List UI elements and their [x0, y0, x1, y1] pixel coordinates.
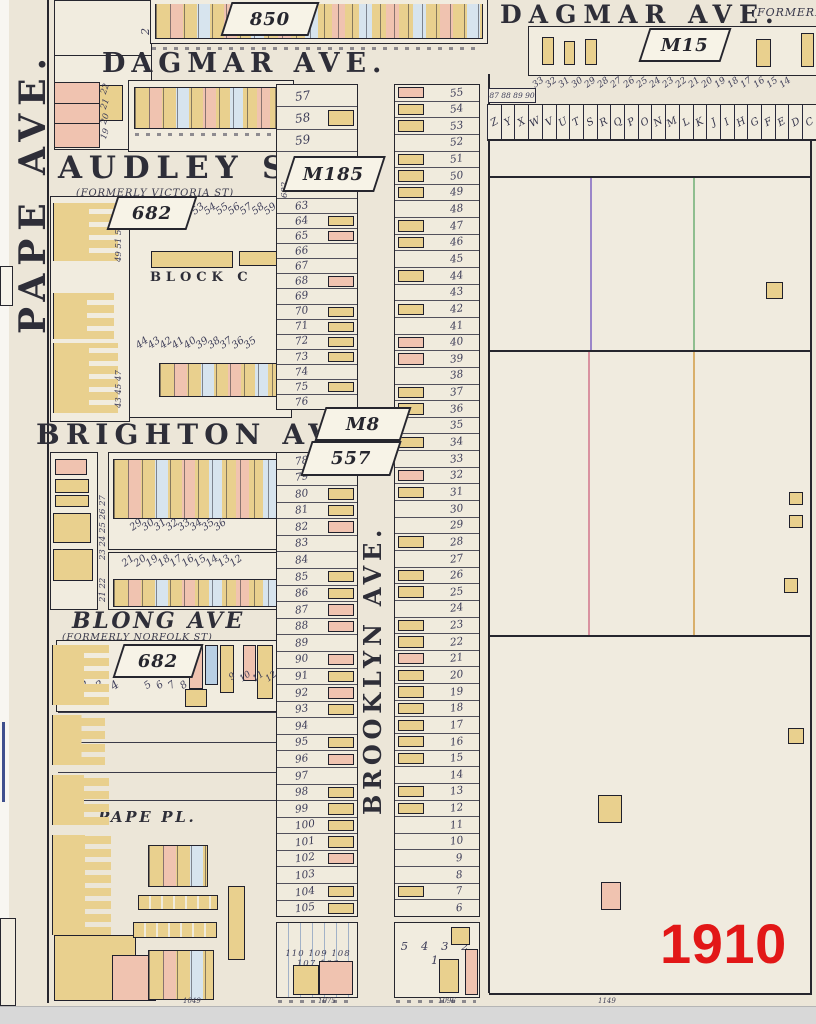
lettered-lot: O [638, 105, 652, 139]
lot-number: 80 [294, 488, 309, 500]
lot-row: 85 [277, 568, 357, 585]
street-note-dagmar: (FORMERLY [752, 6, 816, 19]
city-block [108, 452, 302, 550]
rowhouses [52, 835, 111, 935]
lot-number: 21 [449, 652, 464, 664]
building [398, 120, 424, 131]
lot-line [588, 352, 590, 635]
building [205, 645, 218, 685]
lot-row: 72 [277, 334, 357, 349]
city-block: 5 4 3 2 1 [394, 922, 480, 998]
lot-row: 23 [395, 617, 479, 634]
lot-line [58, 712, 280, 713]
lot-letter: E [776, 115, 788, 128]
lot-row: 65 [277, 228, 357, 243]
year-stamp: 1910 [660, 916, 787, 972]
lot-row: 7 [395, 883, 479, 900]
lot-row: 22 [395, 633, 479, 650]
lot-number-row: 2930313233343536 [130, 520, 226, 531]
lot-number: 88 [294, 620, 309, 632]
building [398, 270, 424, 281]
lot-row: 49 [395, 184, 479, 201]
building [398, 620, 424, 631]
building [328, 216, 354, 226]
street-label-dagmar-east: DAGMAR AVE. [500, 0, 781, 29]
lot-number-row: 21201918171615141312 [122, 556, 242, 567]
lot-row: 57 [277, 85, 357, 106]
lot-number: 95 [294, 736, 309, 748]
lot-number: 22 [449, 636, 464, 648]
lot-row: 102 [277, 850, 357, 867]
street-label-pape: PAPE AVE. [12, 50, 54, 334]
lot-row: 59 [277, 129, 357, 151]
lot-row: 6 [395, 899, 479, 916]
lot-number: 36 [449, 403, 464, 415]
lot-number: 101 [294, 835, 315, 848]
lot-number: 42 [449, 303, 464, 315]
building [451, 927, 470, 945]
lot-number: 40 [449, 336, 464, 348]
lot-number: 34 [449, 436, 464, 448]
building [398, 536, 424, 547]
lot-row: 26 [395, 567, 479, 584]
lot-number-row: 9101112 [226, 672, 278, 682]
lot-row: 90 [277, 651, 357, 668]
plan-number: 682 [138, 651, 178, 672]
lot-number: 66 [294, 245, 309, 257]
building [328, 737, 354, 748]
building [784, 578, 798, 593]
building [185, 689, 207, 707]
lot-number: 73 [294, 351, 309, 363]
building [801, 33, 814, 67]
building [328, 886, 354, 897]
lot-number: 43 [449, 286, 464, 298]
building [328, 621, 354, 632]
building [53, 513, 91, 543]
lot-number: 20 [99, 112, 112, 125]
lot-number: 46 [449, 236, 464, 248]
building [328, 571, 354, 582]
lot-row: 11 [395, 816, 479, 833]
rowhouses [113, 459, 297, 519]
lettered-lot: P [624, 105, 638, 139]
lot-row: 43 [395, 284, 479, 301]
building [328, 903, 354, 914]
building [328, 322, 354, 332]
house-number-row: 87 88 89 90 [488, 88, 536, 103]
rowhouses [148, 950, 214, 1000]
building [328, 754, 354, 765]
lot-number: 41 [449, 320, 464, 332]
lot-row: 96 [277, 750, 357, 767]
plan-number: 850 [250, 9, 290, 30]
lot-row: 9 [395, 849, 479, 866]
lot-row: 17 [395, 716, 479, 733]
lot-row: 92 [277, 684, 357, 701]
plan-number: M185 [303, 164, 364, 185]
building [398, 337, 424, 348]
lot-row: 94 [277, 717, 357, 734]
lot-row: 66 [277, 243, 357, 258]
lot-row: 95 [277, 734, 357, 751]
lot-number: 104 [294, 885, 315, 898]
lot-number: 7 [456, 886, 464, 897]
lot-row: 14 [395, 766, 479, 783]
lot-row: 101 [277, 833, 357, 850]
lot-number: 54 [449, 103, 464, 115]
boundary-line [488, 74, 490, 993]
lot-row: 83 [277, 535, 357, 552]
lot-number: 70 [294, 305, 309, 317]
lot-row: 27 [395, 550, 479, 567]
plan-number: M8 [346, 414, 380, 435]
building [789, 492, 803, 505]
lot-number: 93 [294, 703, 309, 715]
lettered-lot: N [651, 105, 665, 139]
lot-letter: D [790, 115, 802, 128]
building [398, 586, 424, 597]
lot-row: 46 [395, 234, 479, 251]
lot-row: 37 [395, 384, 479, 401]
building [398, 753, 424, 764]
lot-row: 104 [277, 883, 357, 900]
lot-number: 105 [294, 902, 315, 915]
lot-rows: 57 58 59 [277, 85, 357, 151]
building [398, 387, 424, 398]
lot-row: 53 [395, 117, 479, 134]
lot-row: 70 [277, 304, 357, 319]
lot-number: 83 [294, 538, 309, 550]
building [398, 104, 424, 115]
lot-number: 13 [449, 786, 464, 798]
lettered-lot: Y [501, 105, 515, 139]
lot-number: 53 [449, 120, 464, 132]
plan-number: 682 [132, 203, 172, 224]
lot-number: 45 [449, 253, 464, 265]
lot-row: 69 [277, 288, 357, 303]
lot-number: 38 [449, 370, 464, 382]
lot-line [693, 352, 695, 635]
lot-rows: 78 79 80 81 82 83 84 [277, 453, 357, 916]
lettered-lot: X [514, 105, 528, 139]
lot-rows: 55 54 53 52 51 50 49 [395, 85, 479, 916]
lot-row: 20 [395, 666, 479, 683]
lot-row: 73 [277, 349, 357, 364]
lot-letter: I [723, 116, 732, 128]
building [398, 87, 424, 98]
lot-number: 67 [294, 260, 309, 272]
lot-row: 42 [395, 300, 479, 317]
building [398, 154, 424, 165]
lettered-lot: D [788, 105, 802, 139]
lot-number: 22 [99, 82, 112, 95]
lot-row: 40 [395, 334, 479, 351]
street-label-blong: BLONG AVE [72, 608, 245, 634]
lot-column-west-upper: 57 58 59 63 64 65 [276, 84, 358, 410]
building [398, 653, 424, 664]
building [398, 670, 424, 681]
lot-number: 14 [449, 769, 464, 781]
lot-number: 68 [294, 275, 309, 287]
lot-number: 84 [294, 554, 309, 566]
lot-row: 87 [277, 601, 357, 618]
lot-line [693, 178, 695, 350]
lot-row: 12 [395, 800, 479, 817]
lot-number: 10 [449, 836, 464, 848]
lot-letter: V [543, 115, 555, 128]
lot-number: 16 [449, 736, 464, 748]
lot-number: 12 [449, 802, 464, 814]
lot-number: 32 [449, 469, 464, 481]
fire-insurance-atlas-map: 2 3 850 DAGMAR AVE. 22212019 AUDLEY ST. … [0, 0, 816, 1024]
lot-number: 15 [449, 752, 464, 764]
lettered-lot: U [556, 105, 570, 139]
building [585, 39, 597, 65]
lot-line [55, 123, 99, 124]
lot-number-row: 44434241403938373635 [136, 338, 256, 349]
lot-row: 89 [277, 634, 357, 651]
lot-number: 11 [449, 819, 464, 831]
lot-letter: F [763, 116, 774, 129]
building [328, 382, 354, 392]
building [328, 337, 354, 347]
lot-number: 59 [294, 133, 311, 147]
building [328, 588, 354, 599]
building [398, 886, 424, 897]
lot-number: 25 [449, 586, 464, 598]
lot-letter: H [735, 115, 748, 129]
lot-number: 47 [449, 220, 464, 232]
lot-number: 75 [294, 381, 309, 393]
building [398, 237, 424, 248]
lettered-lot: S [583, 105, 597, 139]
rowhouses [134, 87, 286, 129]
lot-number: 44 [449, 270, 464, 282]
house-number-ticks [135, 133, 285, 136]
lettered-lot: L [679, 105, 693, 139]
lot-row: 50 [395, 167, 479, 184]
lot-letter: R [598, 115, 610, 128]
building [55, 479, 89, 493]
lot-row: 25 [395, 583, 479, 600]
lot-letter: P [626, 116, 637, 129]
lot-letter: T [571, 116, 582, 129]
lot-row: 30 [395, 500, 479, 517]
lot-number: 14 [777, 75, 793, 91]
lot-row: 99 [277, 800, 357, 817]
lot-number-string: 23 24 25 26 27 [98, 495, 108, 560]
lot-number: 37 [449, 386, 464, 398]
lot-number: 71 [294, 321, 309, 333]
building [598, 795, 622, 823]
building [601, 882, 621, 910]
lot-number: 89 [294, 637, 309, 649]
building [398, 803, 424, 814]
lot-letter: O [639, 115, 651, 129]
rowhouses [52, 645, 109, 705]
lot-line [590, 178, 592, 350]
lot-row: 13 [395, 783, 479, 800]
building [328, 488, 354, 499]
block-line [489, 350, 810, 352]
building [328, 853, 354, 864]
building [439, 959, 459, 993]
lot-letter: G [749, 115, 761, 128]
building [328, 505, 354, 516]
building [398, 170, 424, 181]
lot-row: 34 [395, 433, 479, 450]
lot-row: 18 [395, 700, 479, 717]
lot-row: 68 [277, 273, 357, 288]
building [220, 645, 234, 693]
lot-number: 72 [294, 336, 309, 348]
lot-row: 86 [277, 585, 357, 602]
plan-number: M15 [661, 35, 709, 56]
building [328, 654, 354, 665]
lot-row: 10 [395, 833, 479, 850]
survey-number: 1049 [183, 997, 201, 1005]
lettered-lot: I [720, 105, 734, 139]
block-line [489, 176, 810, 178]
lot-number: 55 [449, 87, 464, 99]
lot-row: 24 [395, 600, 479, 617]
rowhouses [53, 203, 118, 261]
building [328, 671, 354, 682]
lettered-lot-row: Z Y X W V U T S R Q P O [487, 104, 816, 141]
building [398, 437, 424, 448]
lot-row: 93 [277, 701, 357, 718]
lot-row: 88 [277, 618, 357, 635]
lot-number: 39 [449, 353, 464, 365]
plan-plate-m15: M15 [638, 28, 731, 62]
lot-column-east: 55 54 53 52 51 50 49 [394, 84, 480, 917]
page-margin [0, 0, 9, 1006]
lot-row: 32 [395, 467, 479, 484]
rowhouses [148, 845, 208, 887]
building [55, 459, 87, 475]
lot-column-west-lower: 78 79 80 81 82 83 84 [276, 452, 358, 917]
lot-row: 82 [277, 518, 357, 535]
building [53, 549, 93, 581]
lot-letter: J [709, 116, 718, 128]
street-label-brooklyn: BROOKLYN AVE. [358, 525, 387, 815]
plan-number: 557 [331, 448, 371, 469]
lettered-lot: V [542, 105, 556, 139]
lot-number: 63 [294, 200, 309, 212]
lot-letter: Y [503, 116, 514, 129]
rowhouses [113, 579, 297, 607]
lot-row: 45 [395, 250, 479, 267]
lot-letter: M [665, 115, 679, 130]
lot-number: 102 [294, 852, 315, 865]
building [0, 918, 16, 1006]
lot-number: 9 [456, 853, 464, 864]
lot-number: 6 [456, 903, 464, 914]
rowhouses [53, 293, 114, 339]
building [564, 41, 575, 65]
building [398, 736, 424, 747]
lot-number: 87 [294, 604, 309, 616]
lot-number: 91 [294, 670, 309, 682]
plan-plate-682-audley: 682 [106, 196, 197, 230]
lot-number: 27 [449, 553, 464, 565]
lot-row: 98 [277, 784, 357, 801]
lot-number: 28 [449, 536, 464, 548]
plan-plate-m185: M185 [282, 156, 386, 192]
lot-row: 58 [277, 106, 357, 128]
lot-number: 86 [294, 587, 309, 599]
lot-number-row: 3332313029282726252423222120191817161514 [532, 78, 792, 88]
building [328, 604, 354, 615]
building [465, 949, 478, 995]
building [398, 304, 424, 315]
lot-row: 81 [277, 502, 357, 519]
horizontal-scrollbar[interactable] [0, 1006, 816, 1024]
lot-row: 67 [277, 258, 357, 273]
block-c-label: BLOCK C [150, 270, 253, 285]
building [766, 282, 783, 299]
lot-line [55, 103, 99, 104]
lot-row: 97 [277, 767, 357, 784]
building [328, 803, 354, 814]
lot-number-row: 5678 [142, 680, 190, 691]
lot-row: 41 [395, 317, 479, 334]
lot-number: 74 [294, 366, 309, 378]
building [398, 570, 424, 581]
lot-number: 90 [294, 654, 309, 666]
building [398, 487, 424, 498]
lettered-lot: J [706, 105, 720, 139]
lot-row: 16 [395, 733, 479, 750]
lot-number: 51 [449, 153, 464, 165]
lot-number-string: 43 45 47 [114, 370, 124, 408]
lot-number: 29 [449, 519, 464, 531]
plan-plate-850: 850 [220, 2, 319, 36]
building [328, 352, 354, 362]
city-block: 110 109 108 107 106 [276, 922, 358, 998]
lot-row: 38 [395, 367, 479, 384]
city-block [128, 80, 294, 152]
building [398, 636, 424, 647]
lettered-lot: W [528, 105, 542, 139]
lot-row: 48 [395, 200, 479, 217]
plan-plate-m8: M8 [314, 407, 411, 441]
plan-plate-682-blong: 682 [112, 644, 203, 678]
lot-letter: N [652, 115, 665, 129]
lot-row: 55 [395, 85, 479, 101]
lot-row: 105 [277, 900, 357, 917]
lot-row: 91 [277, 668, 357, 685]
lot-number: 19 [99, 127, 112, 140]
lot-row: 21 [395, 650, 479, 667]
lot-number: 52 [449, 137, 464, 149]
building [398, 220, 424, 231]
lot-letter: S [585, 116, 596, 129]
building [328, 836, 354, 847]
lettered-lot: T [569, 105, 583, 139]
lot-letter: K [694, 115, 706, 128]
lot-number: 24 [449, 603, 464, 615]
lettered-lot: G [747, 105, 761, 139]
lot-number: 21 [99, 97, 112, 110]
rowhouses [52, 775, 109, 825]
building [328, 687, 354, 698]
lot-number: 76 [294, 396, 309, 408]
lot-row: 64 [277, 213, 357, 228]
building [398, 353, 424, 364]
lot-number: 23 [449, 619, 464, 631]
